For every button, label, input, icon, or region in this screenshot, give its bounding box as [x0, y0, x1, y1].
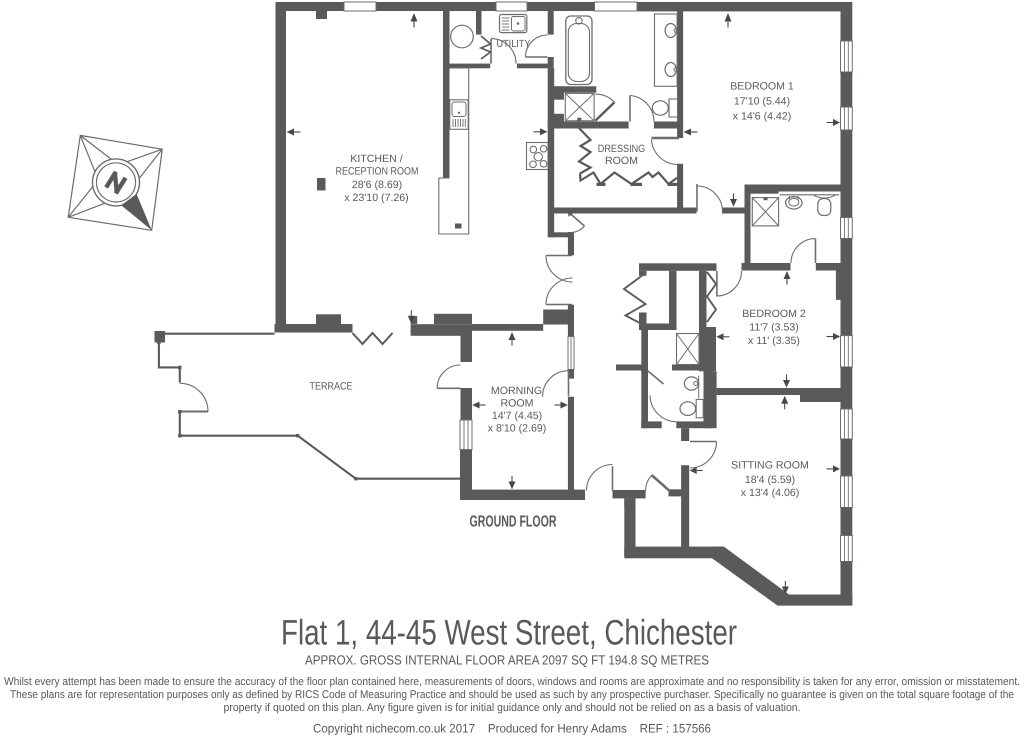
svg-text:MORNING: MORNING: [491, 385, 542, 397]
svg-text:x 11' (3.35): x 11' (3.35): [748, 335, 800, 347]
svg-text:14'7 (4.45): 14'7 (4.45): [492, 410, 542, 422]
svg-text:x 14'6 (4.42): x 14'6 (4.42): [733, 111, 792, 123]
svg-text:APPROX. GROSS INTERNAL FLOOR A: APPROX. GROSS INTERNAL FLOOR AREA 2097 S…: [305, 653, 709, 668]
svg-text:GROUND FLOOR: GROUND FLOOR: [470, 514, 557, 531]
svg-text:TERRACE: TERRACE: [310, 381, 353, 393]
svg-text:x 8'10 (2.69): x 8'10 (2.69): [488, 423, 547, 435]
svg-text:x 13'4 (4.06): x 13'4 (4.06): [741, 487, 800, 499]
svg-text:property if quoted on this pla: property if quoted on this plan. Any fig…: [224, 702, 801, 714]
svg-text:DRESSING: DRESSING: [598, 143, 646, 155]
svg-text:Whilst every attempt has been: Whilst every attempt has been made to en…: [4, 676, 1020, 688]
svg-text:Flat 1, 44-45 West Street, Chi: Flat 1, 44-45 West Street, Chichester: [281, 613, 737, 653]
svg-text:18'4 (5.59): 18'4 (5.59): [745, 474, 795, 486]
svg-text:x 23'10 (7.26): x 23'10 (7.26): [344, 192, 408, 204]
svg-text:17'10 (5.44): 17'10 (5.44): [734, 96, 790, 108]
svg-text:Copyright nichecom.co.uk 2017: Copyright nichecom.co.uk 2017 Produced f…: [313, 722, 711, 736]
svg-text:SITTING ROOM: SITTING ROOM: [731, 460, 809, 472]
svg-text:UTILITY: UTILITY: [497, 39, 531, 50]
svg-text:These plans are for representa: These plans are for representation purpo…: [10, 689, 1014, 701]
svg-text:RECEPTION ROOM: RECEPTION ROOM: [336, 166, 419, 178]
svg-text:28'6 (8.69): 28'6 (8.69): [352, 179, 402, 191]
svg-text:KITCHEN /: KITCHEN /: [350, 153, 402, 165]
svg-text:ROOM: ROOM: [605, 155, 638, 167]
svg-text:BEDROOM 2: BEDROOM 2: [742, 308, 806, 320]
svg-text:BEDROOM 1: BEDROOM 1: [730, 81, 794, 93]
svg-text:11'7 (3.53): 11'7 (3.53): [749, 322, 799, 334]
svg-text:ROOM: ROOM: [501, 398, 534, 410]
